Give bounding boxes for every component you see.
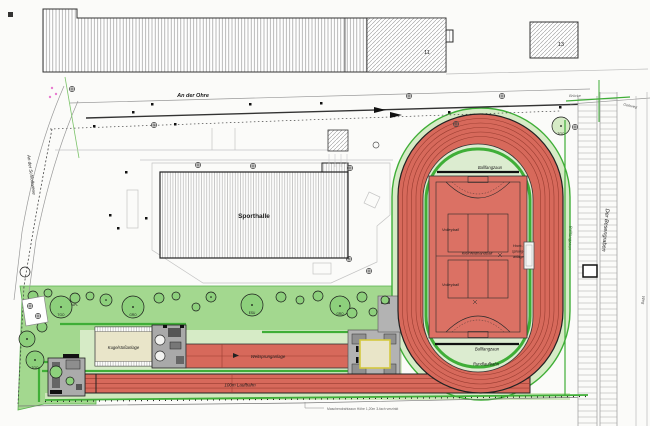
volleyball-lower-label: Volleyball [442, 282, 459, 287]
building-13 [530, 22, 578, 58]
sprint-label: 100m Laufbahn [224, 383, 256, 388]
ditch-band-2 [600, 92, 617, 426]
highjump-mat [524, 242, 534, 269]
throwing-circle [155, 351, 165, 361]
highjump-label-1: Hoch- [513, 244, 523, 248]
ballfence-top-label: Ballfangzaun [478, 165, 503, 170]
corner-mark [8, 12, 13, 17]
shotput-edge-bottom [95, 362, 152, 367]
tree-code: GRO [336, 312, 344, 316]
ballfence-right-label: Ballfangzaun [568, 226, 574, 251]
tree-code: ESU [249, 311, 256, 315]
site-plan: 11 13 An der Ohre An der Schloßwiese Spo… [0, 0, 650, 426]
tree-code: APL [72, 303, 78, 307]
sandpit-area [348, 330, 400, 378]
ditch-band-1 [578, 96, 597, 426]
fence-note: Maschendrahtzaun Höhe 1,20m 3-fach verzi… [327, 407, 398, 411]
equipment-building [152, 325, 186, 368]
tree-code: TGO [58, 313, 65, 317]
tree-code: GRO [129, 313, 137, 317]
stadium: Ballfangzaun Ballfangzaun Rundlaufbahn V… [398, 114, 563, 393]
sporthalle-label: Sporthalle [238, 213, 270, 220]
ditch-structure [583, 265, 597, 277]
entrance-structure [328, 130, 348, 151]
shotput-label: Kugelstoßanlage [108, 345, 140, 350]
tree-code: TGO [32, 366, 39, 370]
tree-code: TGO [558, 132, 565, 136]
roundtrack-label: Rundlaufbahn [473, 362, 500, 367]
sandpit [360, 340, 390, 368]
ballfence-bottom-label: Ballfangzaun [475, 347, 500, 352]
building-11 [367, 18, 446, 72]
handball-label: Kleinfeldhandball [462, 251, 493, 256]
bridge-label: Brücke [569, 94, 581, 98]
shotput-edge-top [95, 327, 152, 332]
street-label-an-der-ohre: An der Ohre [176, 93, 209, 99]
longjump-label: Weitsprunganlage [251, 354, 286, 359]
highjump-label-2: sprung- [512, 250, 525, 254]
volleyball-upper-label: Volleyball [442, 227, 459, 232]
highjump-label-3: anlage [513, 255, 524, 259]
play-square [22, 296, 48, 326]
path-label: Weg [641, 296, 646, 305]
building-11-number: 11 [424, 50, 430, 56]
throwing-circle [155, 335, 165, 345]
building-13-number: 13 [558, 42, 564, 48]
